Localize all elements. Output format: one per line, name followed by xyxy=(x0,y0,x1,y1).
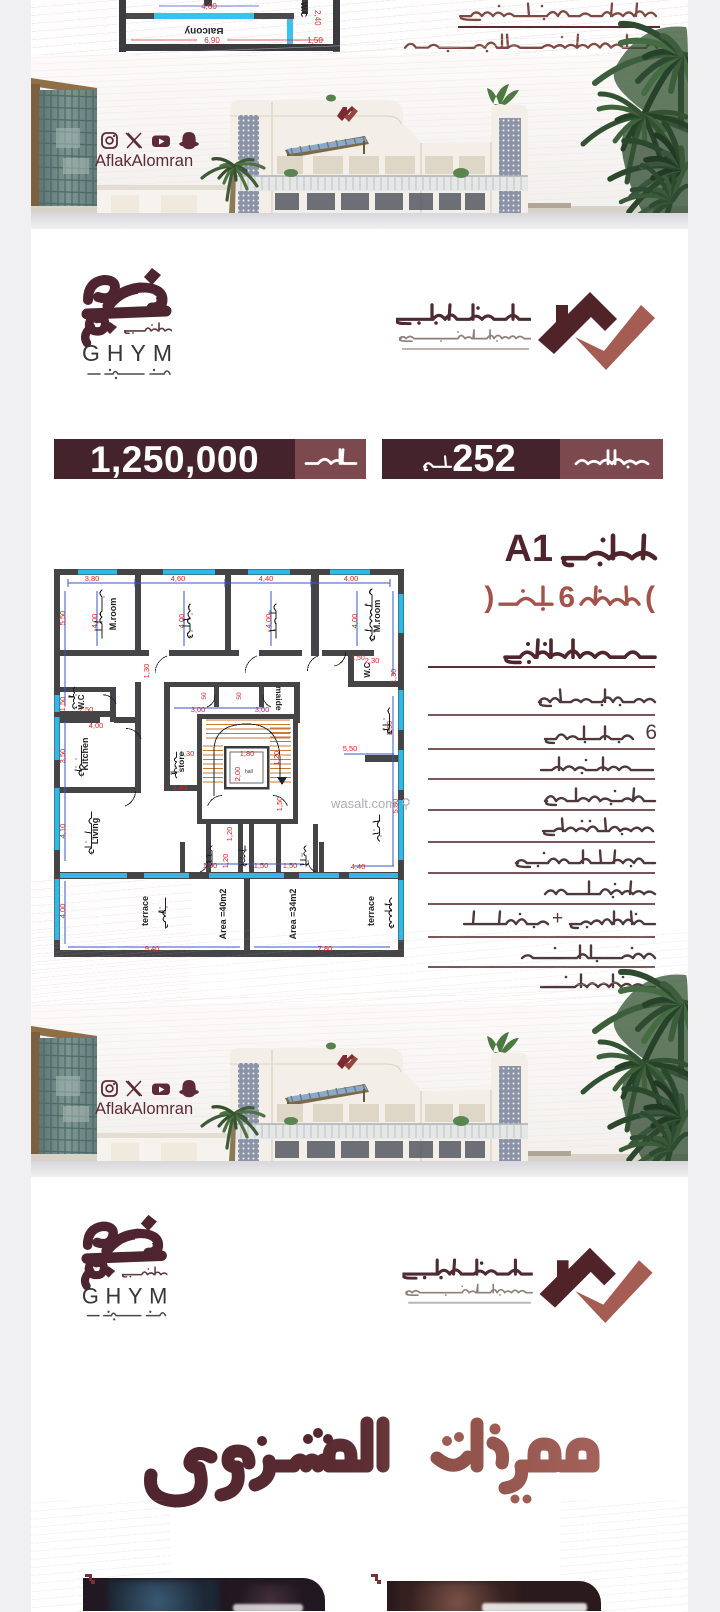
svg-text:50: 50 xyxy=(201,692,208,700)
svg-text:1,40: 1,40 xyxy=(173,783,188,792)
svg-text:W.C: W.C xyxy=(299,2,308,17)
svg-text:1,30: 1,30 xyxy=(142,664,151,679)
svg-text:4,60: 4,60 xyxy=(201,2,217,11)
svg-text:50: 50 xyxy=(236,692,243,700)
svg-text:1,50: 1,50 xyxy=(58,697,67,712)
svg-text:4,00: 4,00 xyxy=(264,614,273,629)
svg-text:3,00: 3,00 xyxy=(191,705,206,714)
svg-text:4,00: 4,00 xyxy=(350,614,359,629)
svg-text:AflakAlomran: AflakAlomran xyxy=(95,1100,193,1118)
svg-text:GHYM: GHYM xyxy=(82,340,179,366)
svg-text:terrace: terrace xyxy=(366,896,376,926)
svg-text:2,40: 2,40 xyxy=(313,10,322,26)
svg-text:wasalt.com: wasalt.com xyxy=(330,796,396,811)
svg-text:store: store xyxy=(176,751,186,772)
svg-text:1,50: 1,50 xyxy=(283,861,298,870)
svg-text:1,50: 1,50 xyxy=(203,861,218,870)
svg-text:W.C: W.C xyxy=(77,694,86,709)
svg-text:5,50: 5,50 xyxy=(343,744,358,753)
svg-text:2,00: 2,00 xyxy=(233,767,242,782)
svg-text:3,80: 3,80 xyxy=(85,574,100,583)
svg-text:1,20: 1,20 xyxy=(272,751,281,766)
svg-text:4,00: 4,00 xyxy=(344,574,359,583)
svg-text:1,80: 1,80 xyxy=(240,749,255,758)
svg-text:4,40: 4,40 xyxy=(259,574,274,583)
svg-text:1,50: 1,50 xyxy=(254,861,269,870)
svg-text:GHYM: GHYM xyxy=(82,1283,174,1308)
svg-text:4,60: 4,60 xyxy=(171,574,186,583)
svg-text:4,10: 4,10 xyxy=(58,824,67,839)
svg-text:5,50: 5,50 xyxy=(58,611,67,626)
svg-text:3,00: 3,00 xyxy=(255,705,270,714)
svg-text:4,00: 4,00 xyxy=(89,721,104,730)
svg-text:M.room: M.room xyxy=(372,600,382,633)
svg-text:hall: hall xyxy=(245,769,253,775)
svg-text:1,20: 1,20 xyxy=(221,854,230,869)
svg-text:1,20: 1,20 xyxy=(225,827,234,842)
svg-text:1,50: 1,50 xyxy=(275,797,284,812)
svg-text:1,50: 1,50 xyxy=(351,655,365,662)
svg-text:W.C: W.C xyxy=(363,662,372,677)
svg-text:maide: maide xyxy=(274,686,284,711)
svg-text:1,30: 1,30 xyxy=(389,669,398,684)
svg-text:AflakAlomran: AflakAlomran xyxy=(95,152,193,170)
svg-text:M.room: M.room xyxy=(108,598,118,631)
svg-text:3,50: 3,50 xyxy=(58,749,67,764)
svg-text:4,00: 4,00 xyxy=(90,614,99,629)
svg-text:4,40: 4,40 xyxy=(351,862,366,871)
